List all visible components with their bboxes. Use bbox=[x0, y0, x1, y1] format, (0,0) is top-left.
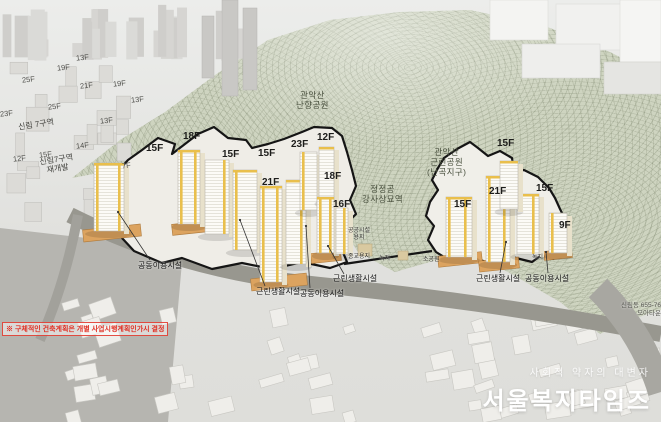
context-floor-label: 13F bbox=[131, 95, 145, 105]
park-label: 정정공 강사상묘역 bbox=[362, 185, 403, 205]
context-floor-label: 13F bbox=[76, 53, 90, 63]
context-floor-label: 25F bbox=[48, 102, 62, 112]
watermark: 사회적 약자의 대변자 서울복지타임즈 bbox=[482, 364, 651, 416]
context-floor-label: 12F bbox=[13, 154, 27, 164]
floor-label: 12F bbox=[317, 132, 334, 144]
address-line1: 신림동 655-76 bbox=[595, 302, 661, 310]
watermark-slogan: 사회적 약자의 대변자 bbox=[482, 364, 651, 379]
district-label: 신림 7구역 bbox=[18, 117, 55, 132]
facility-label: 근린생활시설 bbox=[333, 274, 377, 283]
floor-label: 21F bbox=[489, 186, 506, 198]
context-floor-label: 19F bbox=[113, 79, 127, 89]
floor-label: 23F bbox=[291, 139, 308, 151]
address-label: 신림동 655-76 모아타운 bbox=[595, 302, 661, 318]
landuse-label: 종교용지 bbox=[348, 254, 370, 261]
district-label: 신림7구역 재개발 bbox=[39, 152, 75, 175]
rendering-canvas: 15F18F15F15F23F12F21F18F16F15F15F21F15F9… bbox=[0, 0, 661, 422]
floor-label: 15F bbox=[497, 138, 514, 150]
floor-label: 9F bbox=[559, 220, 571, 232]
disclaimer-note: ※ 구체적인 건축계획은 개별 사업시행계획인가시 결정 bbox=[2, 322, 168, 336]
landuse-label: 녹지 bbox=[532, 255, 543, 262]
floor-label: 21F bbox=[262, 177, 279, 189]
floor-label: 15F bbox=[222, 149, 239, 161]
facility-label: 공동이용시설 bbox=[138, 261, 182, 270]
landuse-label: 소공원 bbox=[423, 257, 440, 264]
address-line2: 모아타운 bbox=[595, 310, 661, 318]
floor-label: 15F bbox=[454, 199, 471, 211]
facility-label: 공동이용시설 bbox=[300, 289, 344, 298]
floor-label: 15F bbox=[258, 148, 275, 160]
floor-label: 18F bbox=[183, 131, 200, 143]
floor-label: 15F bbox=[536, 183, 553, 195]
context-floor-label: 19F bbox=[57, 63, 71, 73]
context-floor-label: 7F bbox=[122, 162, 132, 171]
facility-label: 공동이용시설 bbox=[525, 274, 569, 283]
park-label: 관악산 난향공원 bbox=[296, 91, 329, 111]
facility-label: 근린생활시설 bbox=[256, 287, 300, 296]
label-layer: 15F18F15F15F23F12F21F18F16F15F15F21F15F9… bbox=[0, 0, 661, 422]
context-floor-label: 25F bbox=[22, 75, 36, 85]
park-label: 관악산 근린공원 (난곡지구) bbox=[427, 148, 466, 177]
floor-label: 15F bbox=[146, 143, 163, 155]
context-floor-label: 13F bbox=[100, 116, 114, 126]
watermark-title: 서울복지타임즈 bbox=[482, 381, 651, 416]
context-floor-label: 14F bbox=[76, 141, 90, 151]
landuse-label: 녹지 bbox=[379, 256, 390, 263]
floor-label: 16F bbox=[333, 199, 350, 211]
facility-label: 근린생활시설 bbox=[476, 274, 520, 283]
floor-label: 18F bbox=[324, 171, 341, 183]
context-floor-label: 21F bbox=[80, 81, 94, 91]
context-floor-label: 23F bbox=[0, 109, 13, 119]
landuse-label: 공공시설 용지 bbox=[348, 228, 370, 242]
